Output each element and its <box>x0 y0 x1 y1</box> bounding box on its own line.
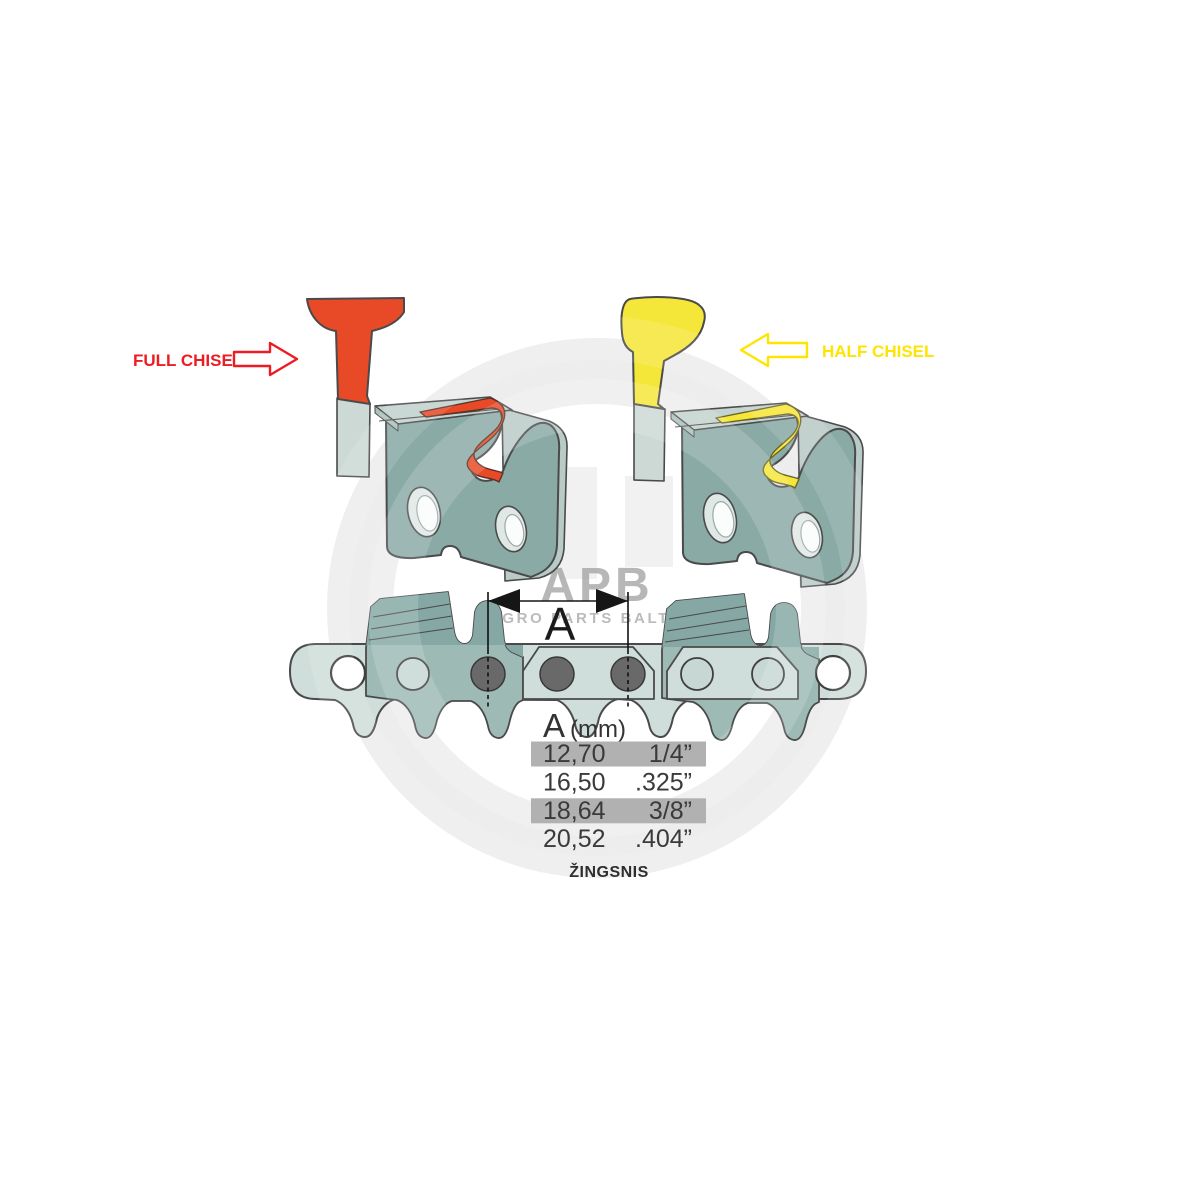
cell-inch: 3/8” <box>649 797 692 825</box>
table-header-unit: (mm) <box>570 716 626 743</box>
full-chisel-arrow-right-icon <box>234 343 297 375</box>
half-chisel-label: HALF CHISEL <box>822 342 934 361</box>
cell-mm: 12,70 <box>543 740 606 768</box>
diagram-canvas: APB AGRO PARTS BALTIJA FULL CHISEL HALF … <box>0 0 1188 1188</box>
table-header-letter: A <box>543 707 565 744</box>
full-chisel-profile <box>307 298 404 404</box>
dimension-label: A <box>545 598 576 650</box>
cell-inch: .325” <box>635 768 692 796</box>
chainsaw-chain-pitch-diagram: APB AGRO PARTS BALTIJA FULL CHISEL HALF … <box>0 0 1188 1188</box>
cell-inch: .404” <box>635 825 692 853</box>
cell-inch: 1/4” <box>649 740 692 768</box>
watermark-mark-right <box>625 476 673 567</box>
chain-hole-3 <box>681 658 713 690</box>
cell-mm: 16,50 <box>543 768 606 796</box>
full-chisel-label: FULL CHISEL <box>133 351 243 370</box>
cell-mm: 18,64 <box>543 797 606 825</box>
chain-rivet-2 <box>540 657 574 691</box>
cell-mm: 20,52 <box>543 825 606 853</box>
pitch-caption: ŽINGSNIS <box>569 862 649 881</box>
